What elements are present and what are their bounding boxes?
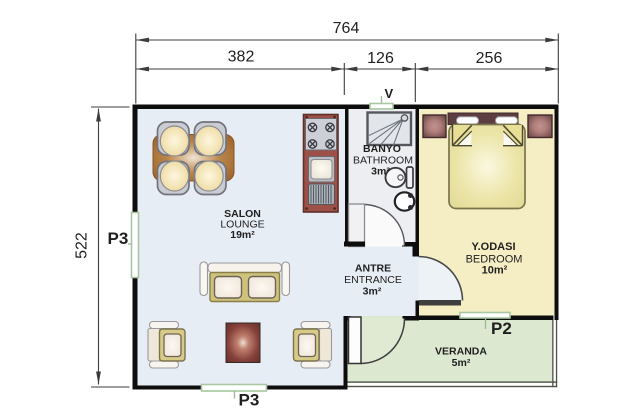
svg-text:3m²: 3m²: [371, 166, 390, 178]
svg-text:764: 764: [333, 20, 360, 37]
svg-text:10m²: 10m²: [482, 265, 508, 277]
svg-text:Y.ODASI: Y.ODASI: [471, 241, 515, 253]
svg-text:P3: P3: [108, 229, 129, 248]
svg-text:256: 256: [476, 50, 503, 67]
svg-text:VERANDA: VERANDA: [435, 346, 487, 358]
svg-text:ANTRE: ANTRE: [355, 263, 391, 275]
svg-text:BANYO: BANYO: [363, 143, 401, 155]
svg-text:P3: P3: [239, 391, 260, 410]
svg-text:5m²: 5m²: [452, 357, 471, 369]
svg-text:V: V: [385, 86, 394, 101]
svg-text:126: 126: [367, 50, 394, 67]
svg-text:P2: P2: [491, 319, 512, 338]
svg-text:382: 382: [228, 49, 255, 66]
svg-text:ENTRANCE: ENTRANCE: [344, 274, 402, 286]
svg-text:19m²: 19m²: [230, 229, 255, 241]
svg-text:522: 522: [74, 232, 91, 259]
svg-text:3m²: 3m²: [363, 286, 382, 298]
